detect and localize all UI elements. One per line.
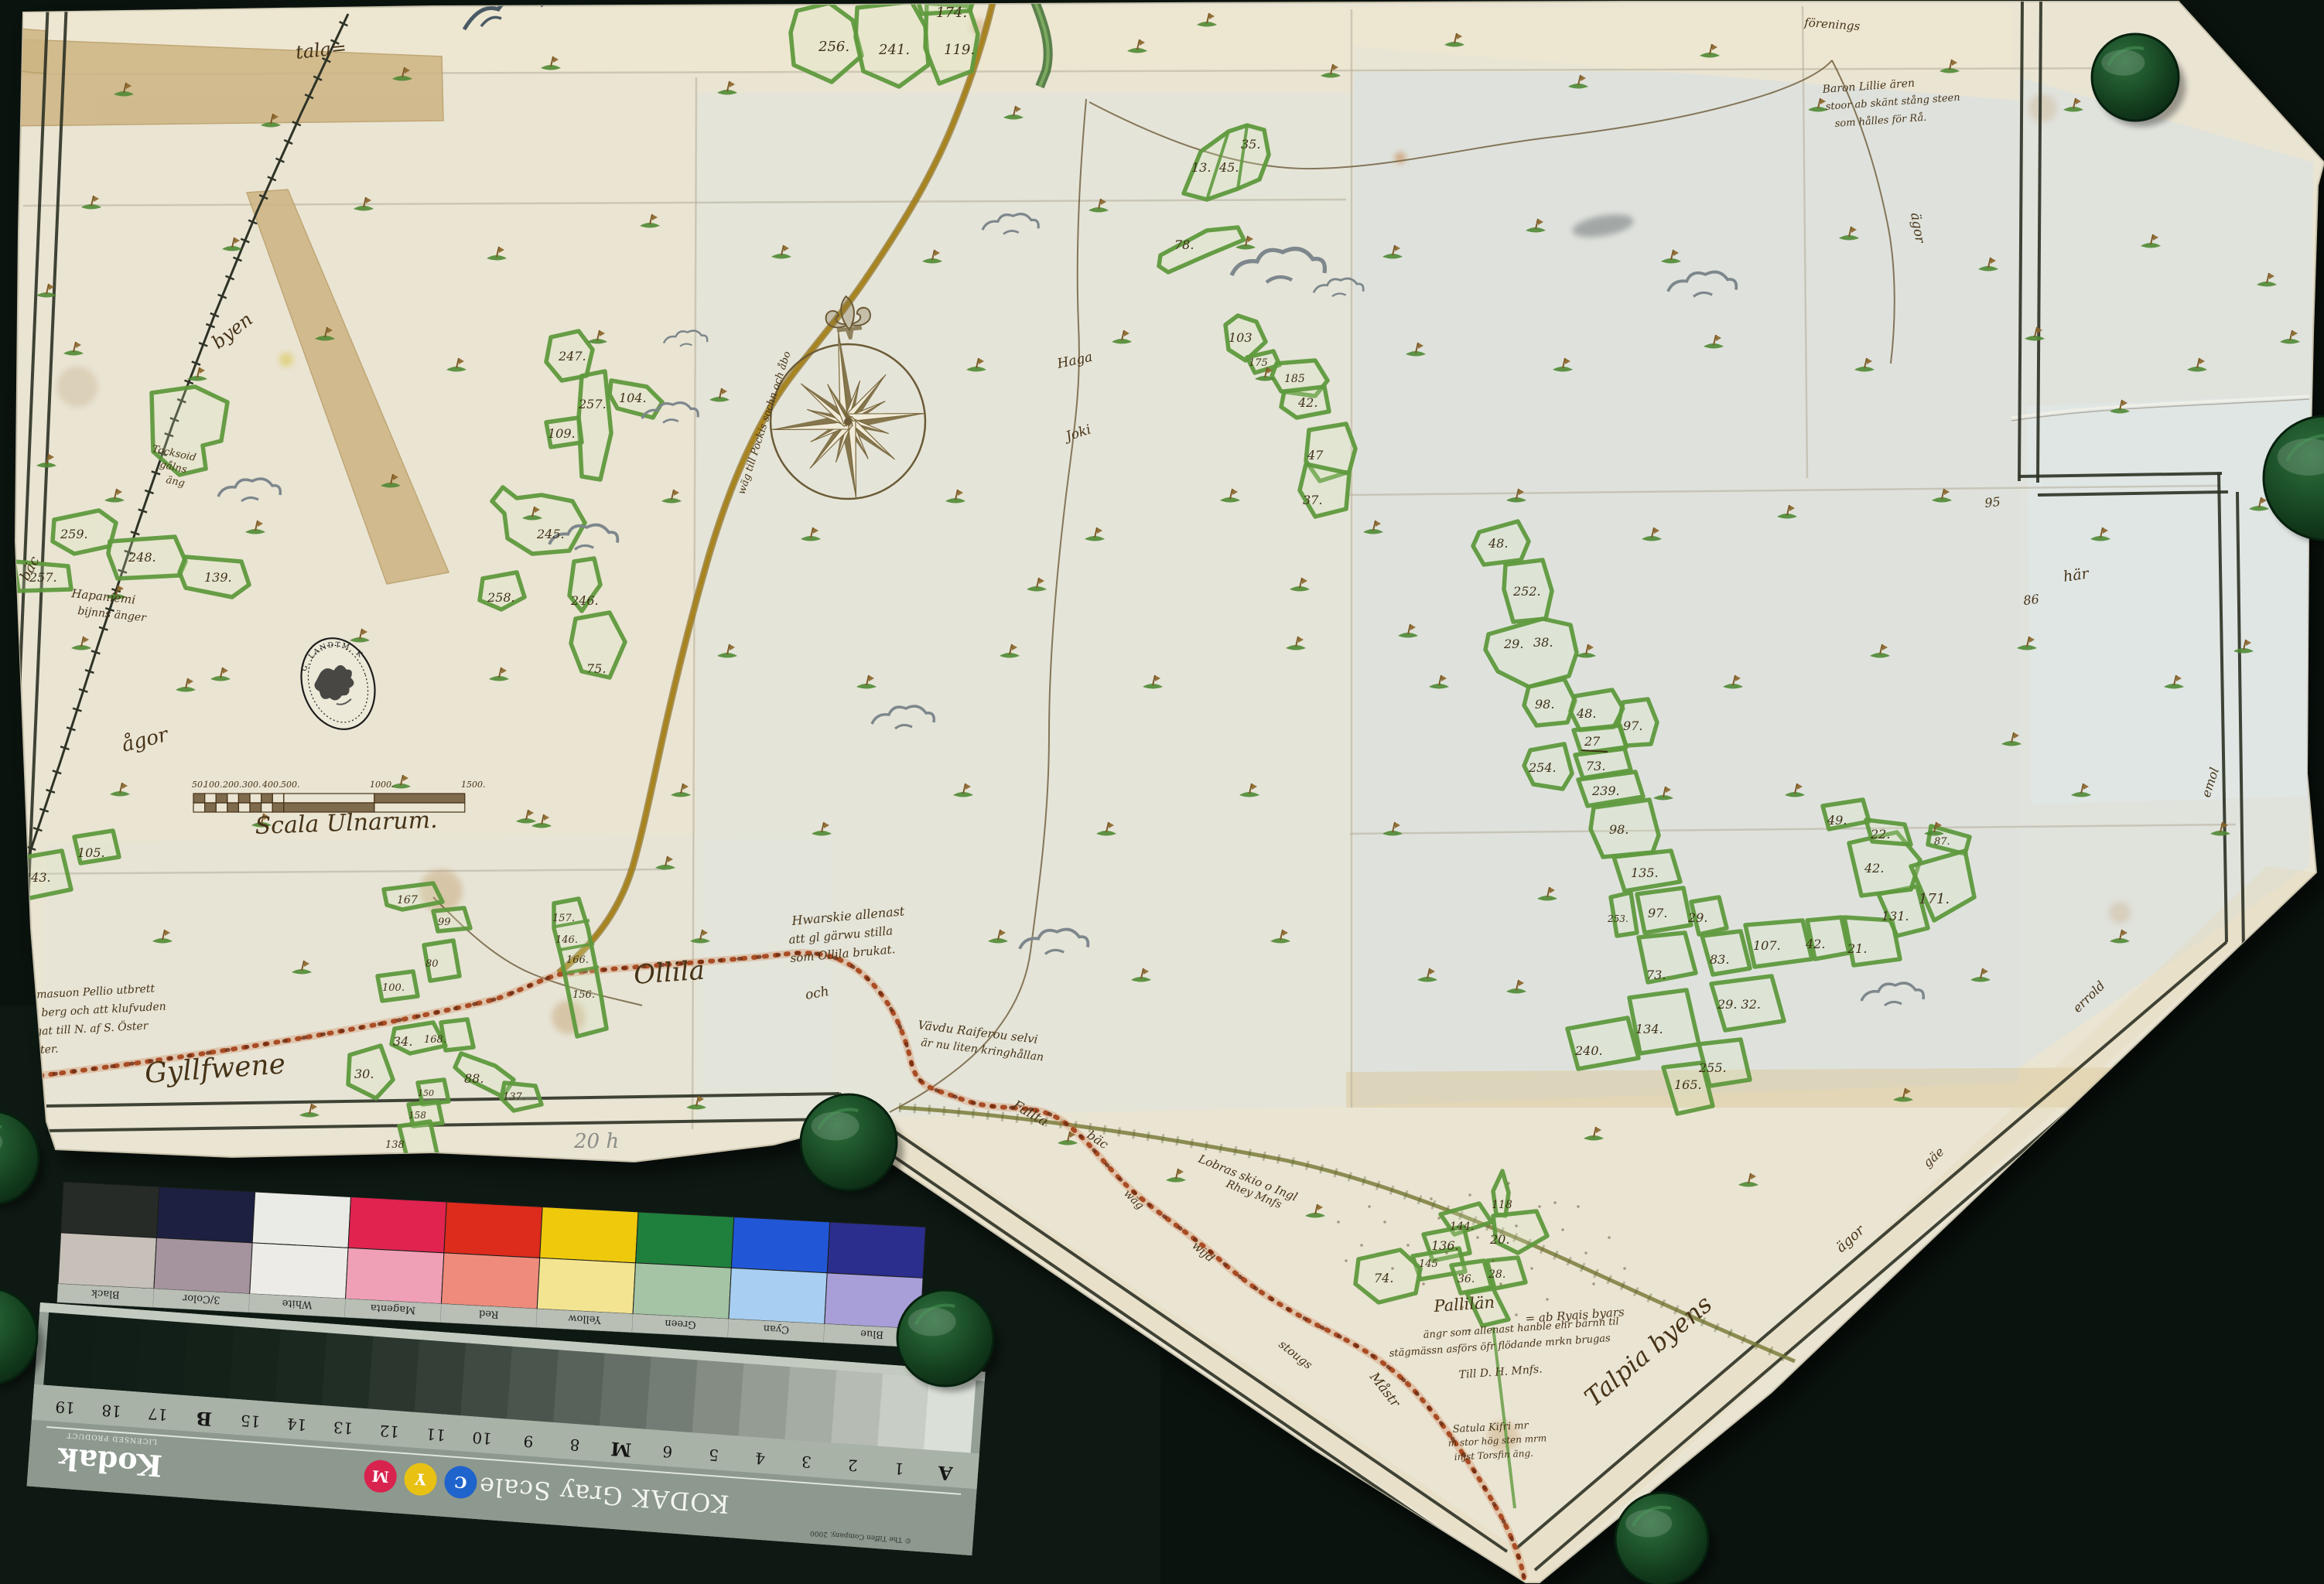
puck-highlight <box>908 1307 956 1336</box>
gray-ruler-number: 2 <box>847 1456 858 1475</box>
parcel-number: 107. <box>1753 938 1781 953</box>
gray-ruler-number: 6 <box>661 1442 672 1461</box>
color-patch-tint <box>633 1263 731 1319</box>
parcel-number: 168. <box>424 1034 446 1046</box>
gray-step <box>877 1374 929 1449</box>
gray-step <box>90 1316 142 1391</box>
stain-spot <box>57 367 97 407</box>
parcel-number: 20. <box>1489 1232 1509 1247</box>
gray-ruler-number: 15 <box>240 1411 261 1431</box>
stipple-dot <box>1584 1251 1587 1255</box>
parcel-number: 156. <box>572 989 595 1001</box>
gray-step <box>460 1343 512 1418</box>
compass-hub <box>844 418 852 425</box>
parcel-number: 165. <box>1674 1077 1702 1092</box>
parcel-number: 119. <box>944 42 975 58</box>
gray-step <box>229 1326 281 1401</box>
gray-step <box>831 1371 883 1446</box>
parcel-number: 36. <box>1458 1273 1475 1285</box>
stipple-dot <box>1468 1193 1471 1197</box>
parcel-number: 175 <box>1249 357 1268 369</box>
gray-step <box>553 1350 605 1425</box>
map-annotation: 86 <box>2022 592 2039 608</box>
parcel-number: 42. <box>1297 395 1318 410</box>
color-patch-label: Cyan <box>763 1323 790 1336</box>
parcel-number: 103 <box>1229 330 1253 345</box>
parcel-number: 80 <box>425 958 439 970</box>
puck-highlight <box>812 1111 860 1140</box>
parcel-number: 35. <box>1241 137 1260 152</box>
scale-tick-label: 500. <box>281 780 300 790</box>
parcel-number: 97. <box>1648 906 1667 920</box>
parcel-number: 38. <box>1533 635 1553 650</box>
parcel-number: 247. <box>558 349 586 364</box>
stipple-dot <box>1507 1182 1510 1185</box>
stipple-dot <box>1499 1282 1502 1285</box>
scale-tick-label: 200. <box>222 780 242 790</box>
gray-ruler-number: 5 <box>708 1446 719 1465</box>
parcel-number: 30. <box>354 1067 374 1081</box>
stipple-dot <box>1538 1205 1541 1208</box>
parcel-number: 259. <box>60 527 88 541</box>
color-patch-tint <box>154 1237 252 1293</box>
parcel-number: 171. <box>1919 891 1950 907</box>
color-patch-label: Blue <box>860 1327 884 1340</box>
parcel-number: 241. <box>878 42 910 58</box>
stipple-dot <box>1406 1244 1410 1247</box>
stipple-dot <box>1368 1205 1371 1208</box>
color-patch-tint <box>537 1258 635 1313</box>
scale-tick-label: 300. <box>242 780 261 790</box>
parcel-number: 28. <box>1488 1268 1505 1281</box>
parcel-number: 48. <box>1576 706 1596 721</box>
parcel-number: 245. <box>536 527 565 541</box>
parcel-number: 137. <box>503 1091 525 1103</box>
parcel-number: 256. <box>818 39 849 55</box>
color-patch-tint <box>250 1243 348 1299</box>
gray-ruler-number: 9 <box>523 1432 534 1451</box>
parcel-number: 49. <box>1827 813 1847 828</box>
parcel-number: 258. <box>487 590 515 605</box>
stipple-dot <box>1546 1298 1549 1301</box>
gray-step <box>136 1319 188 1395</box>
parcel-number: 45. <box>1218 160 1239 175</box>
stipple-dot <box>1608 1236 1611 1239</box>
parcel-number: 73. <box>1586 759 1605 773</box>
parcel-number: 157. <box>552 913 575 924</box>
parcel-number: 73. <box>1646 968 1666 982</box>
gray-step <box>784 1367 836 1442</box>
parcel-number: 13. <box>1191 160 1211 175</box>
map-annotation: 95 <box>1984 494 2001 510</box>
parcel-number: 109. <box>548 426 576 441</box>
parcel-outline <box>579 371 611 480</box>
color-patch-label: Yellow <box>568 1312 602 1325</box>
map-annotation: Ollila <box>633 955 706 991</box>
parcel-number: 22. <box>1870 827 1890 841</box>
puck-highlight <box>1625 1510 1672 1538</box>
scale-tick-label: 100. <box>203 780 223 790</box>
gray-ruler-number: 12 <box>379 1422 400 1442</box>
gray-step <box>322 1333 374 1408</box>
parcel-number: 166. <box>566 954 589 966</box>
parcel-number: 239. <box>1591 783 1620 798</box>
gray-ruler-number: 14 <box>286 1415 307 1435</box>
map-annotation: 20 h <box>573 1130 619 1153</box>
parcel-number: 42. <box>1864 861 1884 876</box>
gray-ruler-number: 11 <box>425 1425 446 1445</box>
gray-ruler-number: 8 <box>569 1435 580 1455</box>
stipple-dot <box>1337 1220 1340 1224</box>
parcel-number: 135. <box>1631 865 1659 880</box>
parcel-number: 74. <box>1374 1271 1393 1285</box>
color-patch-tint <box>729 1268 827 1323</box>
gray-step <box>367 1336 419 1412</box>
parcel-number: 138 <box>385 1139 405 1151</box>
photo-scene: G. LANDTM. KONT.50.100.200.300.400.500.1… <box>0 0 2324 1584</box>
parcel-number: 34. <box>393 1034 412 1049</box>
gray-step <box>275 1330 327 1405</box>
parcel-number: 48. <box>1488 536 1508 551</box>
parcel-number: 136. <box>1431 1238 1459 1253</box>
color-patch-saturated <box>348 1197 446 1252</box>
parcel-number: 167 <box>397 894 418 906</box>
color-patch-label: 3/Color <box>182 1292 220 1306</box>
stipple-dot <box>1437 1217 1441 1220</box>
gray-ruler-number: 4 <box>754 1449 765 1468</box>
parcel-number: 146. <box>555 934 578 946</box>
stipple-dot <box>1422 1282 1425 1285</box>
stipple-dot <box>1476 1236 1479 1239</box>
stipple-dot <box>1515 1224 1518 1227</box>
parcel-number: 139. <box>204 570 232 585</box>
parcel-number: 27 <box>1584 734 1601 749</box>
parcel-number: 29. <box>1687 910 1707 925</box>
parcel-number: 248. <box>128 550 156 565</box>
parcel-number: 118 <box>1492 1199 1512 1211</box>
gray-step <box>507 1347 559 1422</box>
color-patch-saturated <box>252 1192 350 1248</box>
gray-ruler-number: 1 <box>894 1459 904 1478</box>
parcel-number: 144. <box>1450 1220 1474 1233</box>
parcel-number: 104. <box>619 391 647 405</box>
color-patch-saturated <box>636 1212 734 1268</box>
stipple-dot <box>1383 1220 1386 1224</box>
gray-ruler-number: M <box>610 1438 632 1462</box>
stipple-dot <box>1530 1267 1533 1270</box>
color-patch-tint <box>58 1233 156 1289</box>
cym-letter: M <box>371 1466 390 1487</box>
stipple-dot <box>1515 1313 1518 1316</box>
parcel-number: 150 <box>418 1088 434 1098</box>
parcel-number: 83. <box>1710 952 1729 967</box>
gray-ruler-number: 19 <box>55 1398 76 1418</box>
parcel-number: 29. 32. <box>1717 997 1761 1012</box>
scale-tick-label: 400. <box>261 780 282 790</box>
parcel-number: 255. <box>1698 1060 1727 1075</box>
scale-tick-label: 1500. <box>461 780 486 790</box>
gray-step <box>43 1313 95 1388</box>
color-patch-tint <box>441 1253 539 1309</box>
gray-step <box>600 1354 651 1429</box>
color-patch-label: Red <box>479 1307 500 1319</box>
parcel-number: 88. <box>464 1071 484 1086</box>
stipple-dot <box>1623 1267 1626 1270</box>
parcel-number: 240. <box>1574 1043 1603 1058</box>
parcel-number: 185 <box>1284 373 1305 385</box>
parcel-number: 42. <box>1805 937 1825 951</box>
color-patch-saturated <box>731 1217 829 1272</box>
parcel-number: 105. <box>77 845 105 860</box>
historical-map-photo: G. LANDTM. KONT.50.100.200.300.400.500.1… <box>0 0 2324 1584</box>
cym-letter: C <box>454 1473 468 1492</box>
parcel-number: 87. <box>1934 836 1950 848</box>
stain-spot <box>2028 94 2056 122</box>
stipple-dot <box>1360 1244 1363 1247</box>
gray-ruler-number: 18 <box>101 1401 121 1421</box>
parcel-number: 98. <box>1609 822 1629 837</box>
parcel-number: 131. <box>1881 909 1909 923</box>
parcel-number: 98. <box>1535 697 1554 712</box>
gray-step <box>183 1323 234 1398</box>
stipple-dot <box>1592 1282 1595 1285</box>
color-patch-saturated <box>827 1222 925 1278</box>
gray-step <box>692 1360 744 1435</box>
parcel-number: 75. <box>586 661 606 676</box>
color-patch-label: White <box>282 1297 313 1310</box>
stipple-dot <box>1391 1267 1394 1270</box>
gray-ruler-number: 13 <box>333 1418 354 1438</box>
parcel-number: 158 <box>408 1110 426 1121</box>
parcel-number: 254. <box>1528 760 1557 775</box>
gray-step <box>414 1340 466 1415</box>
color-patch-saturated <box>61 1182 159 1237</box>
parcel-number: 100. <box>382 982 405 994</box>
gray-ruler-number: 17 <box>147 1405 168 1425</box>
stipple-dot <box>1345 1259 1348 1262</box>
parcel-number: 252. <box>1512 584 1541 599</box>
parcel-number: 97. <box>1623 719 1642 733</box>
gray-ruler-number: A <box>937 1462 954 1485</box>
parcel-number: 47 <box>1307 448 1324 463</box>
puck-highlight <box>2101 49 2145 76</box>
parcel-number: 37. <box>1303 493 1322 507</box>
stain-spot <box>2109 902 2131 923</box>
stipple-dot <box>1577 1205 1580 1208</box>
parcel-number: 134. <box>1635 1022 1663 1036</box>
gray-ruler-number: 3 <box>801 1453 812 1472</box>
scale-tick-label: 1000. <box>370 780 395 790</box>
gray-step <box>646 1357 698 1432</box>
stain-spot <box>279 353 293 367</box>
parcel-number: 253. <box>1607 913 1629 924</box>
cym-letter: Y <box>414 1470 428 1489</box>
color-patch-tint <box>346 1248 444 1303</box>
parcel-number: 246. <box>570 593 599 608</box>
parcel-number: 174. <box>936 5 967 21</box>
parcel-number: 29. <box>1503 637 1523 651</box>
parcel-number: 78. <box>1174 237 1194 252</box>
color-patch-label: Black <box>91 1287 120 1300</box>
parcel-number: 257. <box>578 397 607 411</box>
color-patch-label: Magenta <box>370 1302 415 1316</box>
color-patch-label: Green <box>664 1317 696 1330</box>
color-patch-saturated <box>540 1207 638 1262</box>
color-patch-saturated <box>156 1186 255 1242</box>
stipple-dot <box>1553 1201 1557 1204</box>
gray-ruler-number: 10 <box>472 1428 493 1448</box>
stipple-dot <box>1430 1197 1433 1200</box>
gray-step <box>739 1364 791 1439</box>
color-patch-saturated <box>444 1202 542 1258</box>
parcel-number: 145 <box>1419 1258 1438 1270</box>
parcel-number: 21. <box>1847 941 1867 956</box>
stipple-dot <box>1561 1228 1564 1231</box>
gray-ruler-number: B <box>196 1407 213 1430</box>
stipple-dot <box>1492 1259 1495 1262</box>
parcel-number: 99 <box>438 917 451 928</box>
